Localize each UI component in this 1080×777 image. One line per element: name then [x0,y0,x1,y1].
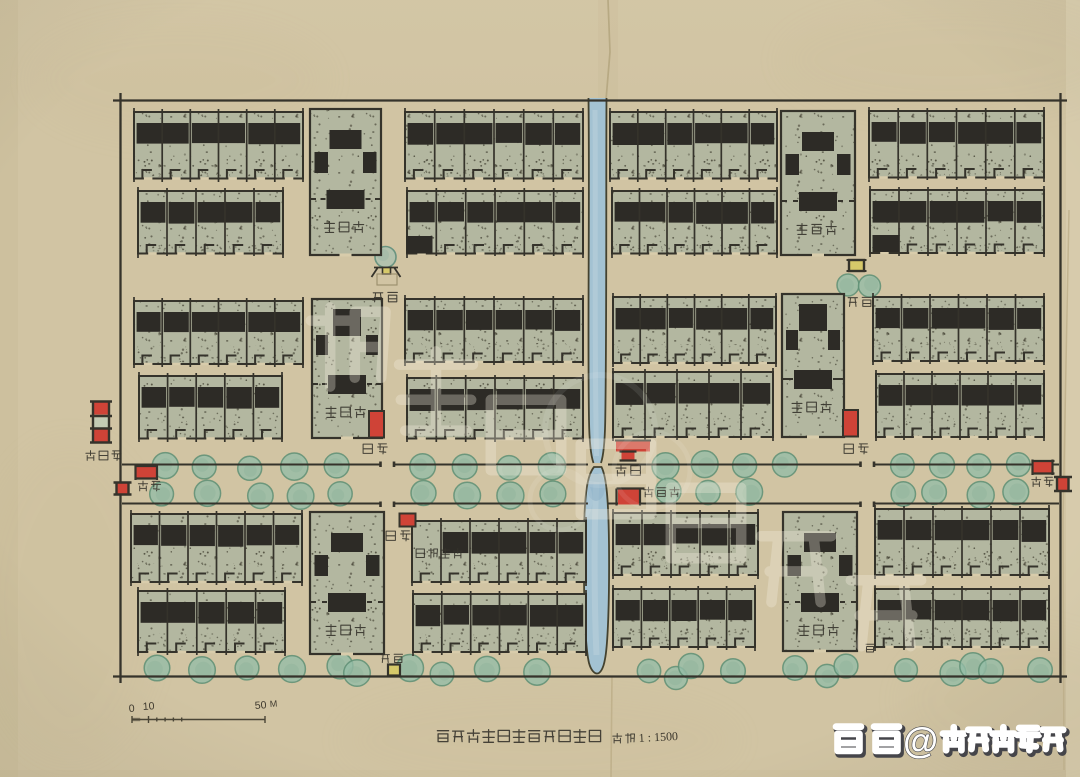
svg-text:50: 50 [254,699,267,712]
svg-text:10: 10 [142,700,155,713]
svg-text:0: 0 [128,703,135,715]
svg-text:1 : 1500: 1 : 1500 [638,729,678,745]
svg-text:@: @ [903,720,938,761]
svg-text:M: M [269,698,277,708]
